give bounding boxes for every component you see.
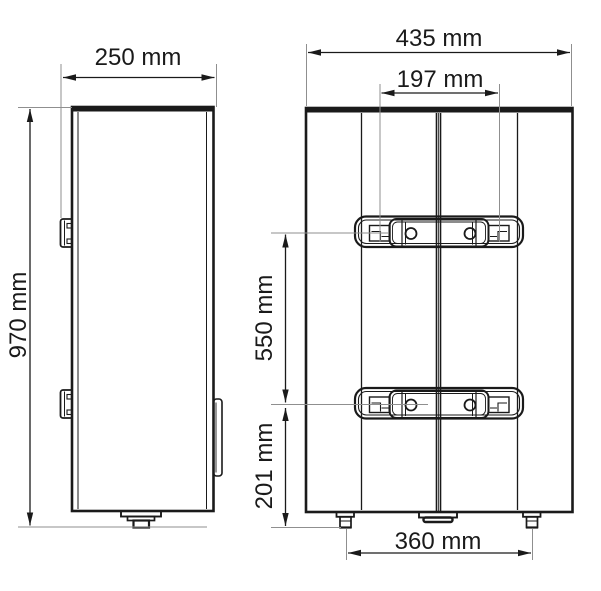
dimensional-drawing: 250 mm 970 mm 435 mm 197 mm 550 mm 201 m… — [0, 0, 601, 591]
dim-label-970: 970 mm — [5, 272, 32, 359]
dim-label-197: 197 mm — [397, 66, 484, 93]
keyhole-slot-right — [489, 397, 510, 413]
dim-label-435: 435 mm — [396, 25, 483, 52]
dim-bracket-row-spacing: 550 mm — [251, 233, 428, 405]
bracket-bar — [390, 219, 489, 247]
dim-label-201: 201 mm — [251, 423, 278, 510]
bracket-hole-right — [465, 400, 476, 411]
side-upper-wall-bracket — [61, 219, 72, 247]
dim-side-width: 250 mm — [61, 44, 217, 218]
back-bottom-pipe — [419, 512, 457, 522]
back-lower-mounting-bracket — [355, 388, 523, 419]
back-body — [306, 108, 573, 512]
dim-label-360: 360 mm — [395, 528, 482, 555]
dim-bracket-to-bottom: 201 mm — [251, 408, 341, 528]
dim-label-550: 550 mm — [251, 275, 278, 362]
dim-side-height: 970 mm — [5, 108, 207, 528]
side-bottom-pipes — [121, 511, 161, 528]
bracket-hole-left — [406, 228, 417, 239]
back-body-top-edge — [306, 108, 573, 113]
back-left-foot — [337, 512, 355, 528]
side-body — [72, 107, 214, 511]
side-view — [61, 107, 223, 528]
side-lower-wall-bracket — [61, 390, 72, 418]
dim-feet-spacing: 360 mm — [347, 528, 533, 560]
back-view — [306, 108, 573, 528]
dim-label-250: 250 mm — [95, 44, 182, 71]
side-body-top-edge — [72, 107, 214, 112]
back-center-seam — [437, 113, 441, 511]
bracket-hole-right — [465, 228, 476, 239]
back-right-foot — [523, 512, 541, 528]
drawing-canvas: 250 mm 970 mm 435 mm 197 mm 550 mm 201 m… — [0, 0, 601, 591]
keyhole-slot-right — [489, 226, 510, 242]
